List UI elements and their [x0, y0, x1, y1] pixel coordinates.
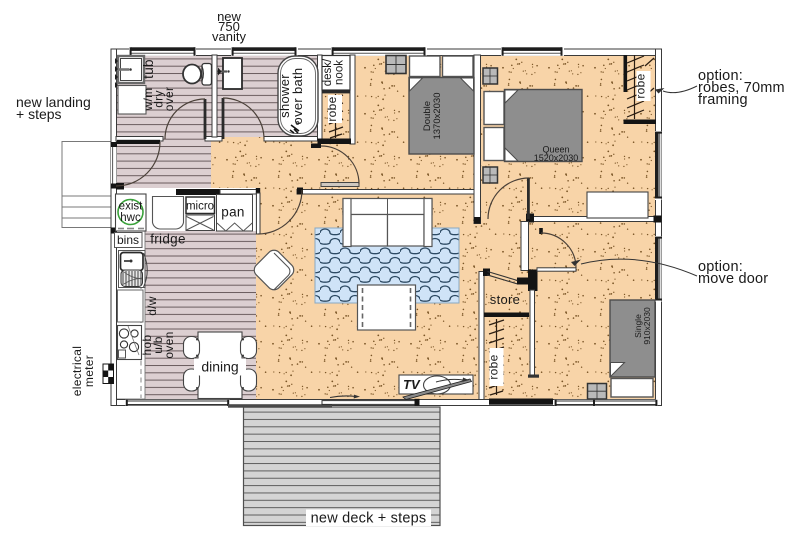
svg-text:tub: tub — [141, 59, 156, 79]
svg-text:framing: framing — [698, 92, 748, 108]
svg-text:fridge: fridge — [150, 232, 186, 247]
svg-text:d/w: d/w — [145, 296, 159, 316]
svg-text:TV: TV — [403, 377, 421, 392]
svg-text:move door: move door — [698, 271, 768, 287]
svg-text:robe: robe — [487, 354, 501, 379]
svg-text:bins: bins — [117, 233, 139, 247]
svg-text:hwc: hwc — [120, 212, 141, 224]
svg-text:new deck + steps: new deck + steps — [311, 511, 427, 527]
svg-text:oven: oven — [162, 331, 176, 358]
svg-text:micro: micro — [186, 201, 214, 213]
svg-text:robe: robe — [634, 73, 648, 98]
svg-text:over: over — [162, 87, 176, 112]
svg-text:meter: meter — [82, 355, 96, 387]
svg-text:over bath: over bath — [290, 68, 305, 125]
svg-text:desk/: desk/ — [322, 58, 334, 86]
svg-text:pan: pan — [221, 205, 244, 220]
svg-text:1520x2030: 1520x2030 — [534, 153, 579, 163]
svg-text:vanity: vanity — [212, 29, 246, 44]
svg-text:910x2030: 910x2030 — [642, 307, 652, 345]
svg-text:store: store — [490, 292, 520, 307]
svg-text:exist: exist — [119, 201, 143, 213]
svg-text:1370x2030: 1370x2030 — [432, 92, 443, 139]
svg-text:nook: nook — [334, 60, 346, 85]
svg-text:robe: robe — [325, 96, 339, 121]
svg-text:+ steps: + steps — [16, 106, 62, 122]
svg-text:dining: dining — [201, 359, 238, 375]
